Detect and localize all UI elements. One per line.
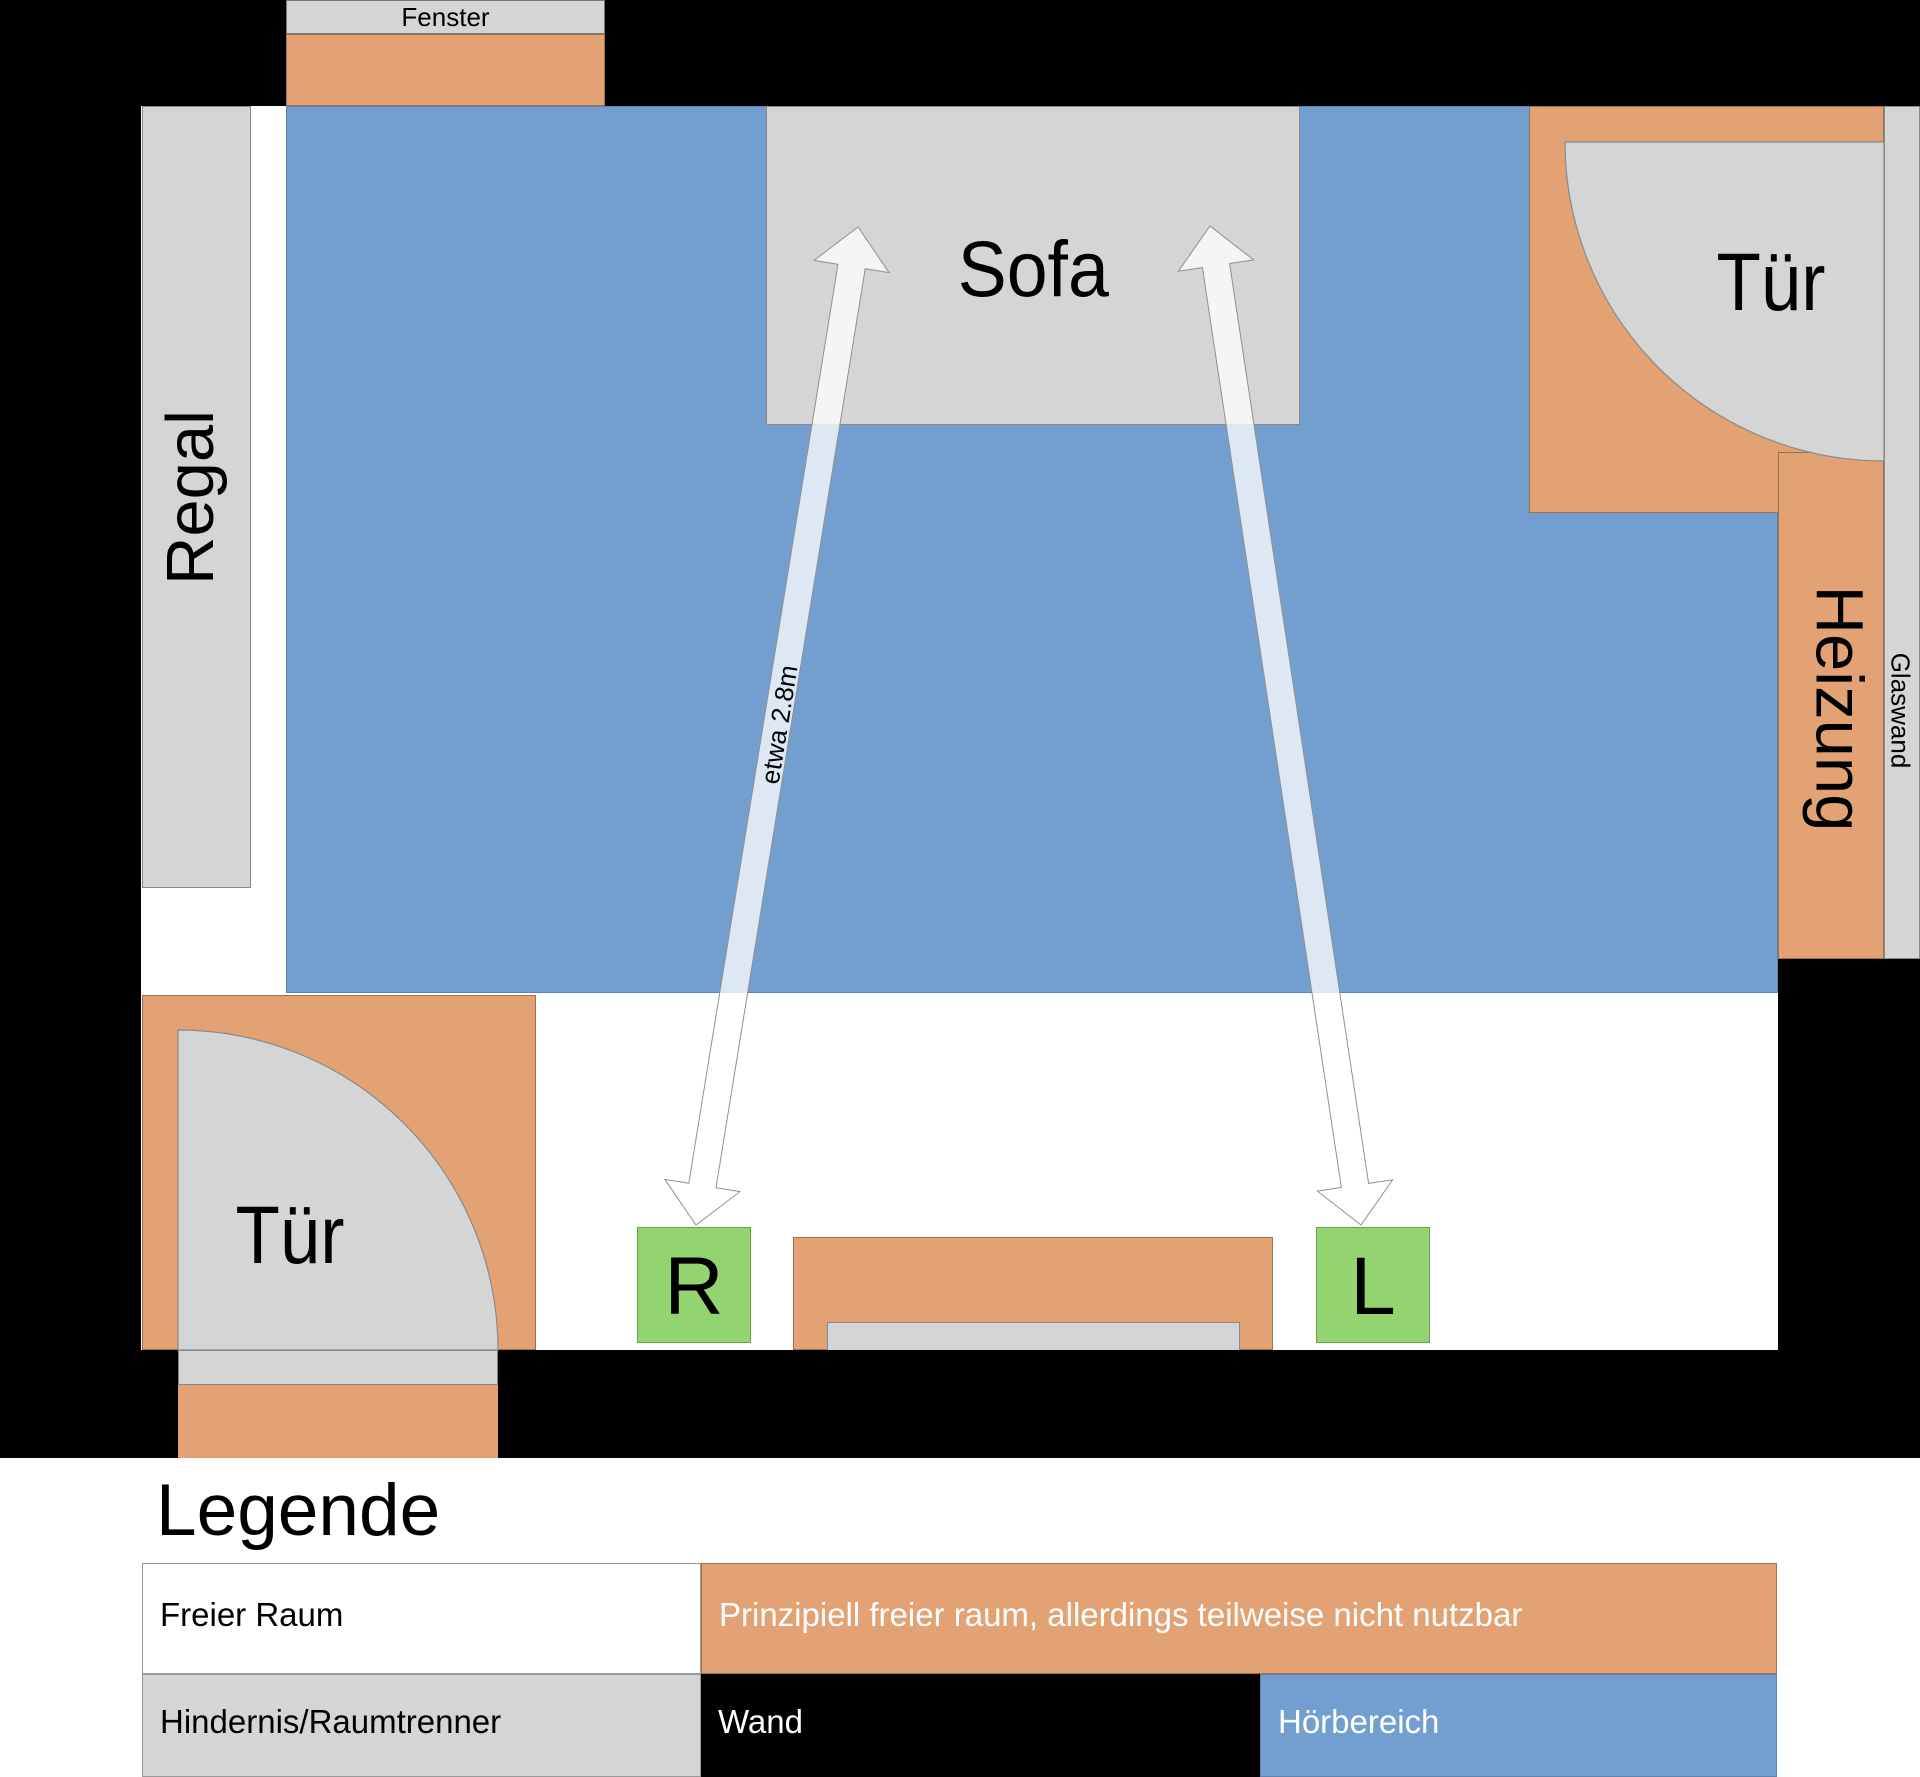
svg-text:Tür: Tür [236,1190,345,1281]
svg-text:etwa 2.8m: etwa 2.8m [755,663,804,786]
svg-text:Tür: Tür [1717,237,1826,328]
